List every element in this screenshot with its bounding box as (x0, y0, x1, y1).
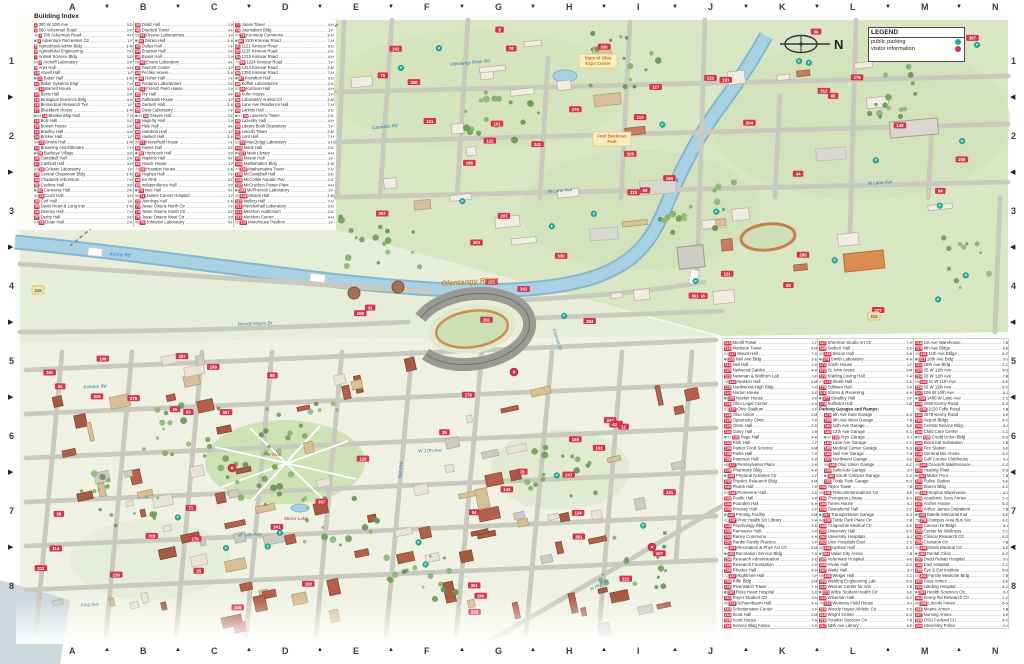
park-label: The Oval (263, 452, 283, 457)
grid-tick-left: ▶ (8, 168, 13, 176)
building (189, 465, 204, 478)
building-number-badge: 48 (135, 71, 141, 75)
index-entry: 269University Police6-J (915, 623, 1008, 628)
grid-tick-right: ◀ (1010, 243, 1015, 251)
tree (908, 72, 914, 78)
svg-text:330: 330 (558, 254, 566, 259)
parking-icon: P (561, 313, 567, 319)
tree (660, 583, 666, 589)
tree (676, 215, 683, 222)
building-number-badge: 75 (378, 72, 389, 78)
tree (222, 455, 229, 462)
svg-text:68: 68 (643, 188, 648, 193)
svg-text:129: 129 (359, 456, 367, 461)
building-number-badge: 241 (531, 141, 544, 147)
tree (307, 409, 313, 415)
parking-icon (135, 114, 138, 117)
building-number-badge: 165 (724, 618, 732, 622)
building-number-badge: 258 (956, 156, 969, 162)
tree (105, 484, 110, 489)
parking-icon: P (963, 273, 969, 279)
building-number-badge: 16 (34, 103, 40, 107)
building-number-badge: 29 (34, 173, 40, 177)
svg-text:88: 88 (57, 512, 62, 517)
svg-text:266: 266 (477, 593, 485, 598)
building-number-badge: 85 (235, 66, 241, 70)
index-entry: 4876Johnston Laboratory4-H (135, 220, 234, 225)
tree (345, 254, 352, 261)
building-number-badge: 179 (824, 413, 832, 417)
grid-letter-bottom: H (566, 646, 573, 656)
building-index-title: Building Index (34, 13, 334, 20)
building-number-badge: 62 (135, 146, 141, 150)
building-number-badge: 114 (50, 546, 63, 552)
building-number-badge: 186 (824, 452, 832, 456)
svg-text:341: 341 (273, 525, 281, 530)
building-number-badge: 145 (724, 507, 732, 511)
parking-icon (34, 77, 37, 80)
svg-text:297: 297 (500, 214, 508, 219)
grid-tick-top: ▼ (601, 4, 607, 10)
building (74, 413, 88, 428)
tree (164, 411, 169, 416)
building-number-badge: 17 (34, 109, 40, 113)
building-number-badge: 95 (235, 119, 241, 123)
building-number-badge: 156 (724, 568, 732, 572)
building (52, 396, 63, 408)
grid-tick-left: ▶ (8, 393, 13, 401)
building-number-badge: 71 (186, 505, 197, 511)
building-number-badge: 100 (302, 581, 315, 587)
building (195, 355, 205, 366)
tree (947, 267, 951, 271)
parking-icon (724, 436, 727, 439)
svg-text:92: 92 (58, 384, 63, 389)
tree (898, 114, 903, 119)
tree (887, 106, 891, 110)
svg-text:247: 247 (565, 472, 573, 477)
building-number-badge: 39 (135, 23, 141, 27)
tree (965, 242, 968, 245)
svg-text:Fred Beekman: Fred Beekman (597, 134, 627, 139)
building-number-badge: 124 (724, 391, 732, 395)
tree (612, 536, 616, 540)
building (559, 512, 569, 522)
park-label: Mirror Lake (284, 516, 308, 521)
campus-map-page: { "grid": { "top_letters": ["A","B","C",… (0, 0, 1024, 664)
building-number-badge: 7 (34, 55, 38, 59)
building-number-badge: 361 (43, 370, 56, 376)
grid-letter-top: K (779, 2, 786, 12)
svg-text:276: 276 (853, 75, 861, 80)
building-number-badge: 120 (724, 369, 732, 373)
building-number-badge: 175 (819, 385, 827, 389)
building-number-badge: 164 (724, 613, 732, 617)
building-number-badge: 65 (135, 162, 141, 166)
building-number-badge: 10 (34, 71, 40, 75)
building (713, 290, 735, 305)
tree (205, 437, 210, 442)
grid-tick-top: ▼ (388, 4, 394, 10)
building-number-badge: 161 (424, 118, 437, 124)
tree (243, 462, 249, 468)
building (404, 357, 416, 371)
parking-icon (235, 152, 238, 155)
building-number-badge: 357 (315, 499, 328, 505)
building-number-badge: 214 (819, 607, 827, 611)
grid-tick-right: ◀ (1010, 168, 1015, 176)
building-number-badge: 247 (562, 472, 575, 478)
parking-icon (915, 397, 918, 400)
parking-icon (915, 475, 918, 478)
tree (238, 494, 245, 501)
svg-text:134: 134 (575, 511, 583, 516)
svg-text:75: 75 (380, 73, 385, 78)
building-number-badge: 180 (824, 419, 832, 423)
grid-letter-bottom: M (921, 646, 929, 656)
svg-text:179: 179 (192, 536, 200, 541)
tree (133, 512, 136, 515)
svg-text:236: 236 (113, 572, 121, 577)
building-number-badge: 19 (34, 119, 40, 123)
tree (374, 518, 380, 524)
tree (712, 188, 716, 192)
tree (438, 582, 443, 587)
tree (276, 483, 283, 490)
tree (986, 271, 992, 277)
grid-tick-bottom: ▲ (814, 647, 820, 653)
building-number-badge: 94 (469, 509, 480, 515)
building-number-badge: 163 (724, 607, 732, 611)
svg-text:319: 319 (148, 534, 156, 539)
building-number-badge: 114 (240, 221, 247, 225)
svg-text:State of Ohio: State of Ohio (585, 56, 612, 61)
tree (575, 456, 581, 462)
tree (661, 218, 667, 224)
building-number-badge: 342 (517, 286, 530, 292)
index-entry: 52114Morehouse Pavilion1-F (235, 220, 334, 225)
building-number-badge: 116 (724, 347, 731, 351)
grid-tick-top: ▼ (814, 4, 820, 10)
legend-title: LEGEND (869, 28, 964, 38)
tree (167, 420, 172, 425)
tree (644, 68, 647, 71)
svg-text:361: 361 (46, 370, 54, 375)
tree (669, 211, 676, 218)
tree (276, 413, 280, 417)
building-number-badge: 232 (915, 419, 923, 423)
building-number-badge: 22 (34, 135, 40, 139)
tree (657, 576, 660, 579)
legend-item: visitor information (869, 45, 964, 52)
building-number-badge: 97 (235, 130, 241, 134)
tree (541, 477, 546, 482)
building-number-badge: 192 (819, 485, 827, 489)
parking-icon: P (436, 45, 442, 51)
tree (961, 244, 966, 249)
tree (623, 558, 629, 564)
building (163, 525, 172, 532)
building-number-badge: 205 (819, 557, 827, 561)
building-number-badge: 119 (724, 363, 731, 367)
building-number-badge: 297 (498, 213, 511, 219)
building-number-badge: 248 (915, 507, 923, 511)
building (451, 123, 464, 134)
building-number-badge: 72 (135, 199, 141, 203)
svg-text:Park: Park (607, 139, 617, 144)
building-number-badge: 276 (569, 106, 582, 112)
parking-icon: P (873, 158, 879, 164)
tree (98, 488, 101, 491)
grid-tick-bottom: ▲ (459, 647, 465, 653)
building-number-badge: 281 (480, 317, 493, 323)
building-number-badge: 167 (819, 341, 827, 345)
building-number-badge: 44 (793, 171, 804, 177)
tree (590, 31, 595, 36)
building-number-badge: 341 (271, 524, 284, 530)
grid-tick-left: ▶ (8, 93, 13, 101)
street-label: W 17th Ave (418, 447, 442, 453)
tree (80, 489, 83, 492)
parking-icon: P (832, 257, 838, 263)
building-index-panel: Building Index 1300 W 10th Ave3-D2660 Ac… (33, 13, 334, 229)
building (466, 146, 476, 156)
index-column: 115Morrill Tower1-F116Morrison Tower3-M6… (723, 339, 817, 628)
grid-tick-bottom: ▲ (885, 647, 891, 653)
building-number-badge: 312 (818, 88, 831, 94)
building-number-badge: 239 (915, 457, 923, 461)
parking-icon: P (959, 138, 965, 144)
tree (899, 107, 904, 112)
building-number-badge: 57 (135, 119, 141, 123)
tree (469, 127, 474, 132)
building-number-badge: 191 (720, 77, 733, 83)
building-number-badge: 285 (797, 252, 810, 258)
route-shield: 315 (32, 286, 44, 294)
building-number-badge: 65 (828, 93, 839, 99)
grid-tick-top: ▼ (459, 4, 465, 10)
building-number-badge: 115 (724, 341, 731, 345)
building-number-badge: 143 (501, 486, 514, 492)
svg-text:357: 357 (379, 211, 387, 216)
tree (159, 420, 165, 426)
tree (265, 407, 268, 410)
grid-letter-top: D (282, 2, 289, 12)
tree (154, 407, 160, 413)
tree (412, 565, 417, 570)
building (793, 264, 807, 271)
svg-text:381: 381 (575, 534, 583, 539)
building (285, 534, 297, 545)
parking-icon (135, 77, 138, 80)
building-number-badge: 73 (135, 205, 141, 209)
svg-text:68: 68 (786, 283, 791, 288)
svg-text:94: 94 (938, 189, 943, 194)
tree (484, 90, 488, 94)
grid-letter-top: G (495, 2, 502, 12)
svg-text:357: 357 (318, 499, 326, 504)
building-number-badge: 150 (724, 535, 732, 539)
building-number-badge: 257 (915, 557, 923, 561)
tree (321, 534, 328, 541)
tree (162, 428, 165, 431)
grid-letter-top: J (708, 2, 713, 12)
tree (362, 524, 369, 531)
tree (377, 261, 381, 265)
building-number-badge: 246 (915, 496, 923, 500)
building-number-badge: 31 (34, 183, 40, 187)
building-number-badge: 319 (146, 533, 159, 539)
building-number-badge: 144 (724, 502, 732, 506)
building-number-badge: 269 (915, 624, 923, 628)
building-number-badge: 142 (389, 46, 402, 52)
building-number-badge: 215 (819, 613, 827, 617)
index-entry: 4438Doan Hall2-K (34, 220, 133, 225)
route-shield: 315 (868, 312, 880, 320)
building (351, 379, 363, 390)
building-number-badge: 78 (506, 45, 517, 51)
building-number-badge: 172 (819, 369, 827, 373)
grid-letter-top: A (69, 2, 76, 12)
building-number-badge: 222 (704, 75, 717, 81)
building-number-badge: 226 (915, 385, 923, 389)
legend-item-label: public parking (871, 39, 906, 45)
grid-tick-top: ▼ (530, 4, 536, 10)
building-number-badge: 217 (819, 624, 827, 628)
parking-icon: P (937, 203, 943, 209)
tree (509, 100, 513, 104)
building-number-badge: 92 (235, 103, 241, 107)
tree (352, 496, 357, 501)
grid-number-right: 7 (1011, 506, 1016, 516)
building-number-badge: 105 (235, 173, 243, 177)
grid-letter-bottom: L (850, 646, 856, 656)
grid-tick-top: ▼ (175, 4, 181, 10)
building-number-badge: 247 (915, 502, 923, 506)
tree (339, 543, 342, 546)
parking-icon: P (549, 223, 555, 229)
grid-tick-bottom: ▲ (104, 647, 110, 653)
svg-text:315: 315 (34, 288, 42, 293)
parking-icon (915, 552, 918, 555)
building-number-badge: 330 (555, 253, 568, 259)
building-number-badge: 24 (34, 146, 40, 150)
parking-icon: P (398, 65, 404, 71)
tree (217, 407, 221, 411)
building-number-badge: 77 (235, 23, 241, 27)
building-number-badge: 102 (235, 157, 243, 161)
grid-letter-bottom: E (353, 646, 359, 656)
tree (570, 494, 573, 497)
tree (625, 36, 629, 40)
building-number-badge: 15 (34, 98, 40, 102)
tree (218, 465, 225, 472)
building-number-badge: 133 (724, 441, 732, 445)
grid-number-left: 5 (9, 356, 14, 366)
building-number-badge: 224 (915, 374, 923, 378)
tree (145, 495, 148, 498)
parking-icon (235, 40, 238, 43)
building-number-badge: 166 (724, 624, 732, 628)
tree (402, 569, 407, 574)
svg-text:191: 191 (596, 446, 604, 451)
building-number-badge: 52 (135, 92, 141, 96)
building (303, 441, 314, 454)
tree (331, 401, 336, 406)
parking-icon: P (640, 523, 646, 529)
area-label-box: State of OhioExpo Center (579, 54, 617, 68)
building-number-badge: 233 (915, 424, 923, 428)
compass-rose: N (778, 26, 852, 62)
building-number-badge: 222 (915, 363, 923, 367)
tree (476, 131, 481, 136)
grid-letter-bottom: G (495, 646, 502, 656)
tree (633, 85, 637, 89)
building-number-badge: 21 (34, 130, 40, 134)
tree (874, 103, 877, 106)
building-number-badge: 196 (663, 175, 676, 181)
tree (338, 217, 345, 224)
svg-text:148: 148 (896, 123, 904, 128)
svg-text:25: 25 (196, 568, 201, 573)
parking-icon (955, 39, 961, 45)
building-number-badge: 148 (724, 524, 732, 528)
building-number-badge: 58 (135, 125, 141, 129)
grid-number-right: 6 (1011, 431, 1016, 441)
tree (670, 230, 675, 235)
grid-number-left: 1 (9, 56, 14, 66)
building-number-badge: 111 (235, 205, 242, 209)
parking-icon (724, 397, 727, 400)
parking-icon (135, 152, 138, 155)
parking-icon (235, 77, 238, 80)
visitor-info-icon: ★ (510, 368, 518, 376)
building-number-badge: 151 (724, 541, 732, 545)
tree (441, 586, 447, 592)
building-number-badge: 218 (915, 341, 923, 345)
tree (731, 179, 737, 185)
parking-icon (235, 189, 238, 192)
building-number-badge: 185 (824, 446, 832, 450)
svg-text:65: 65 (831, 94, 836, 99)
svg-text:159: 159 (572, 437, 580, 442)
svg-text:110: 110 (637, 115, 645, 120)
svg-text:88: 88 (270, 373, 275, 378)
building-number-badge: 113 (235, 215, 242, 219)
tree (602, 573, 605, 576)
tree (262, 476, 268, 482)
building-number-badge: 155 (724, 563, 732, 567)
index-entry: 166Service Bldg Annex3-D (724, 623, 817, 628)
tree (524, 479, 530, 485)
building (414, 199, 431, 210)
parking-icon (819, 397, 822, 400)
building-number-badge: 189 (824, 469, 832, 473)
building-number-badge: 36 (34, 210, 40, 214)
building-number-badge: 154 (724, 557, 732, 561)
grid-tick-bottom: ▲ (246, 647, 252, 653)
parking-icon (724, 475, 727, 478)
legend-item-label: visitor information (871, 46, 915, 52)
tree (345, 535, 352, 542)
building (215, 492, 226, 504)
tree (256, 483, 261, 488)
grid-tick-right: ◀ (1010, 468, 1015, 476)
parking-icon (34, 40, 37, 43)
parking-icon: P (175, 515, 181, 521)
building (634, 497, 646, 510)
building-number-badge: 207 (176, 353, 189, 359)
